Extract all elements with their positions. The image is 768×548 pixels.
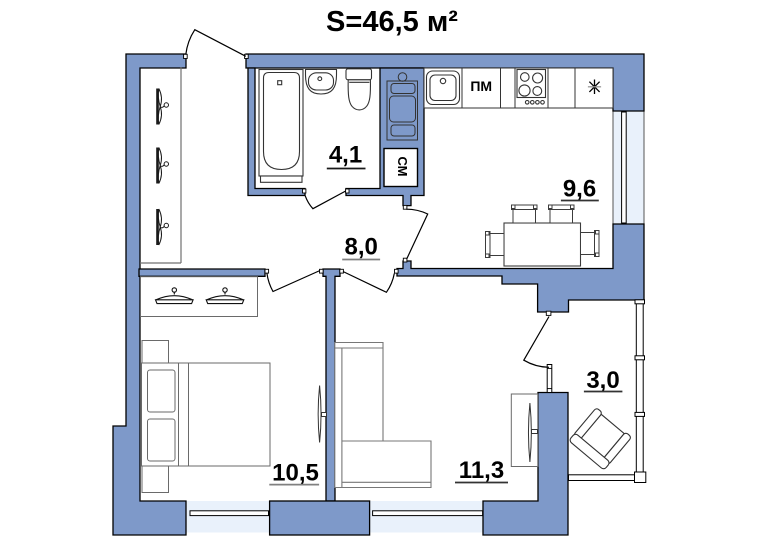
svg-text:ПМ: ПМ — [470, 78, 492, 94]
svg-text:11,3: 11,3 — [459, 457, 504, 484]
svg-text:10,5: 10,5 — [272, 460, 319, 487]
svg-text:3,0: 3,0 — [586, 367, 619, 394]
svg-text:СМ: СМ — [395, 156, 410, 176]
svg-text:S=46,5 м²: S=46,5 м² — [326, 6, 458, 38]
svg-text:9,6: 9,6 — [563, 175, 596, 202]
svg-text:4,1: 4,1 — [329, 141, 362, 168]
svg-text:8,0: 8,0 — [345, 234, 378, 261]
